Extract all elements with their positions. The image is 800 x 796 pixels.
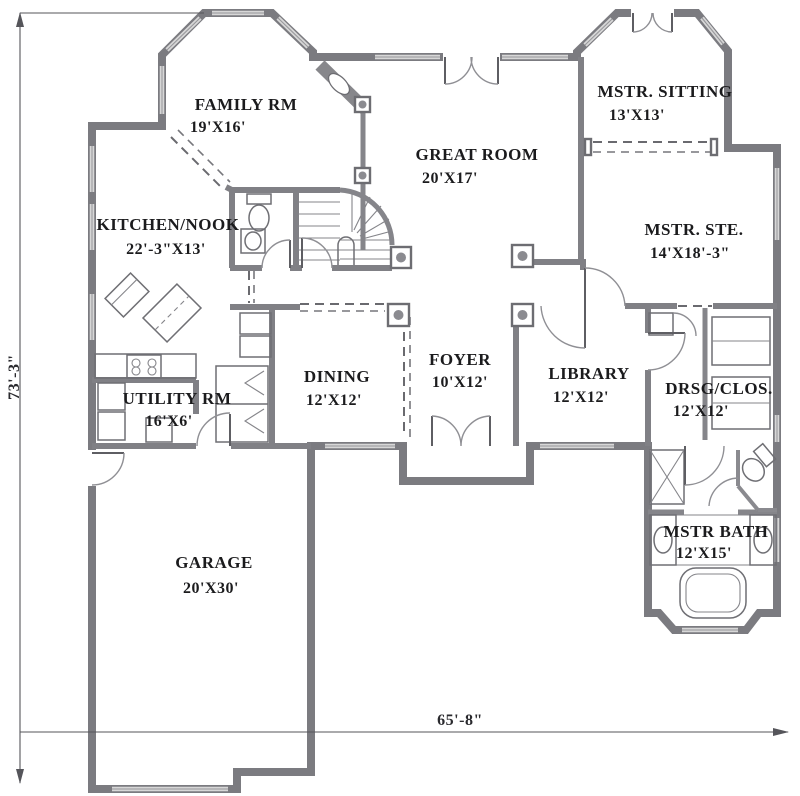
room-dims-suite: 14'X18'-3": [650, 245, 730, 262]
pedestal-sink-icon: [241, 229, 265, 253]
room-label-kitchen: KITCHEN/NOOK: [97, 215, 240, 234]
curved-staircase-icon: [298, 193, 392, 265]
room-label-utility: UTILITY RM: [123, 389, 232, 408]
room-dims-family: 19'X16': [190, 119, 246, 136]
range-icon: [95, 354, 196, 378]
width-dimension-label: 65'-8": [437, 712, 483, 729]
room-dims-great: 20'X17': [422, 170, 478, 187]
room-dims-masterbath: 12'X15': [676, 545, 732, 562]
room-label-family: FAMILY RM: [195, 95, 298, 114]
walk-in-shower-icon: [650, 450, 684, 504]
room-label-masterbath: MSTR BATH: [664, 522, 769, 541]
garden-tub-icon: [680, 568, 746, 618]
room-label-garage: GARAGE: [175, 553, 253, 572]
room-label-dining: DINING: [304, 367, 370, 386]
room-dims-library: 12'X12': [553, 389, 609, 406]
depth-dimension-label: 73'-3": [6, 354, 23, 400]
room-label-dressing: DRSG/CLOS.: [665, 379, 773, 398]
floor-plan-page: FAMILY RM 19'X16' GREAT ROOM 20'X17' MST…: [0, 0, 800, 796]
powder-toilet-icon: [247, 194, 271, 231]
room-dims-dressing: 12'X12': [673, 403, 729, 420]
room-dims-foyer: 10'X12': [432, 374, 488, 391]
room-label-foyer: FOYER: [429, 350, 491, 369]
room-dims-garage: 20'X30': [183, 580, 239, 597]
room-dims-sitting: 13'X13': [609, 107, 665, 124]
room-dims-kitchen: 22'-3"X13': [126, 241, 206, 258]
room-label-suite: MSTR. STE.: [645, 220, 744, 239]
floor-plan-canvas: FAMILY RM 19'X16' GREAT ROOM 20'X17' MST…: [0, 0, 800, 796]
pantry-cabinet-icon: [240, 313, 271, 357]
room-label-sitting: MSTR. SITTING: [598, 82, 733, 101]
room-dims-dining: 12'X12': [306, 392, 362, 409]
room-dims-utility: 16'X6': [145, 413, 192, 430]
washer-dryer-icon: [98, 383, 125, 440]
room-label-great: GREAT ROOM: [416, 145, 539, 164]
kitchen-island-icon: [105, 273, 201, 342]
room-label-library: LIBRARY: [548, 364, 629, 383]
